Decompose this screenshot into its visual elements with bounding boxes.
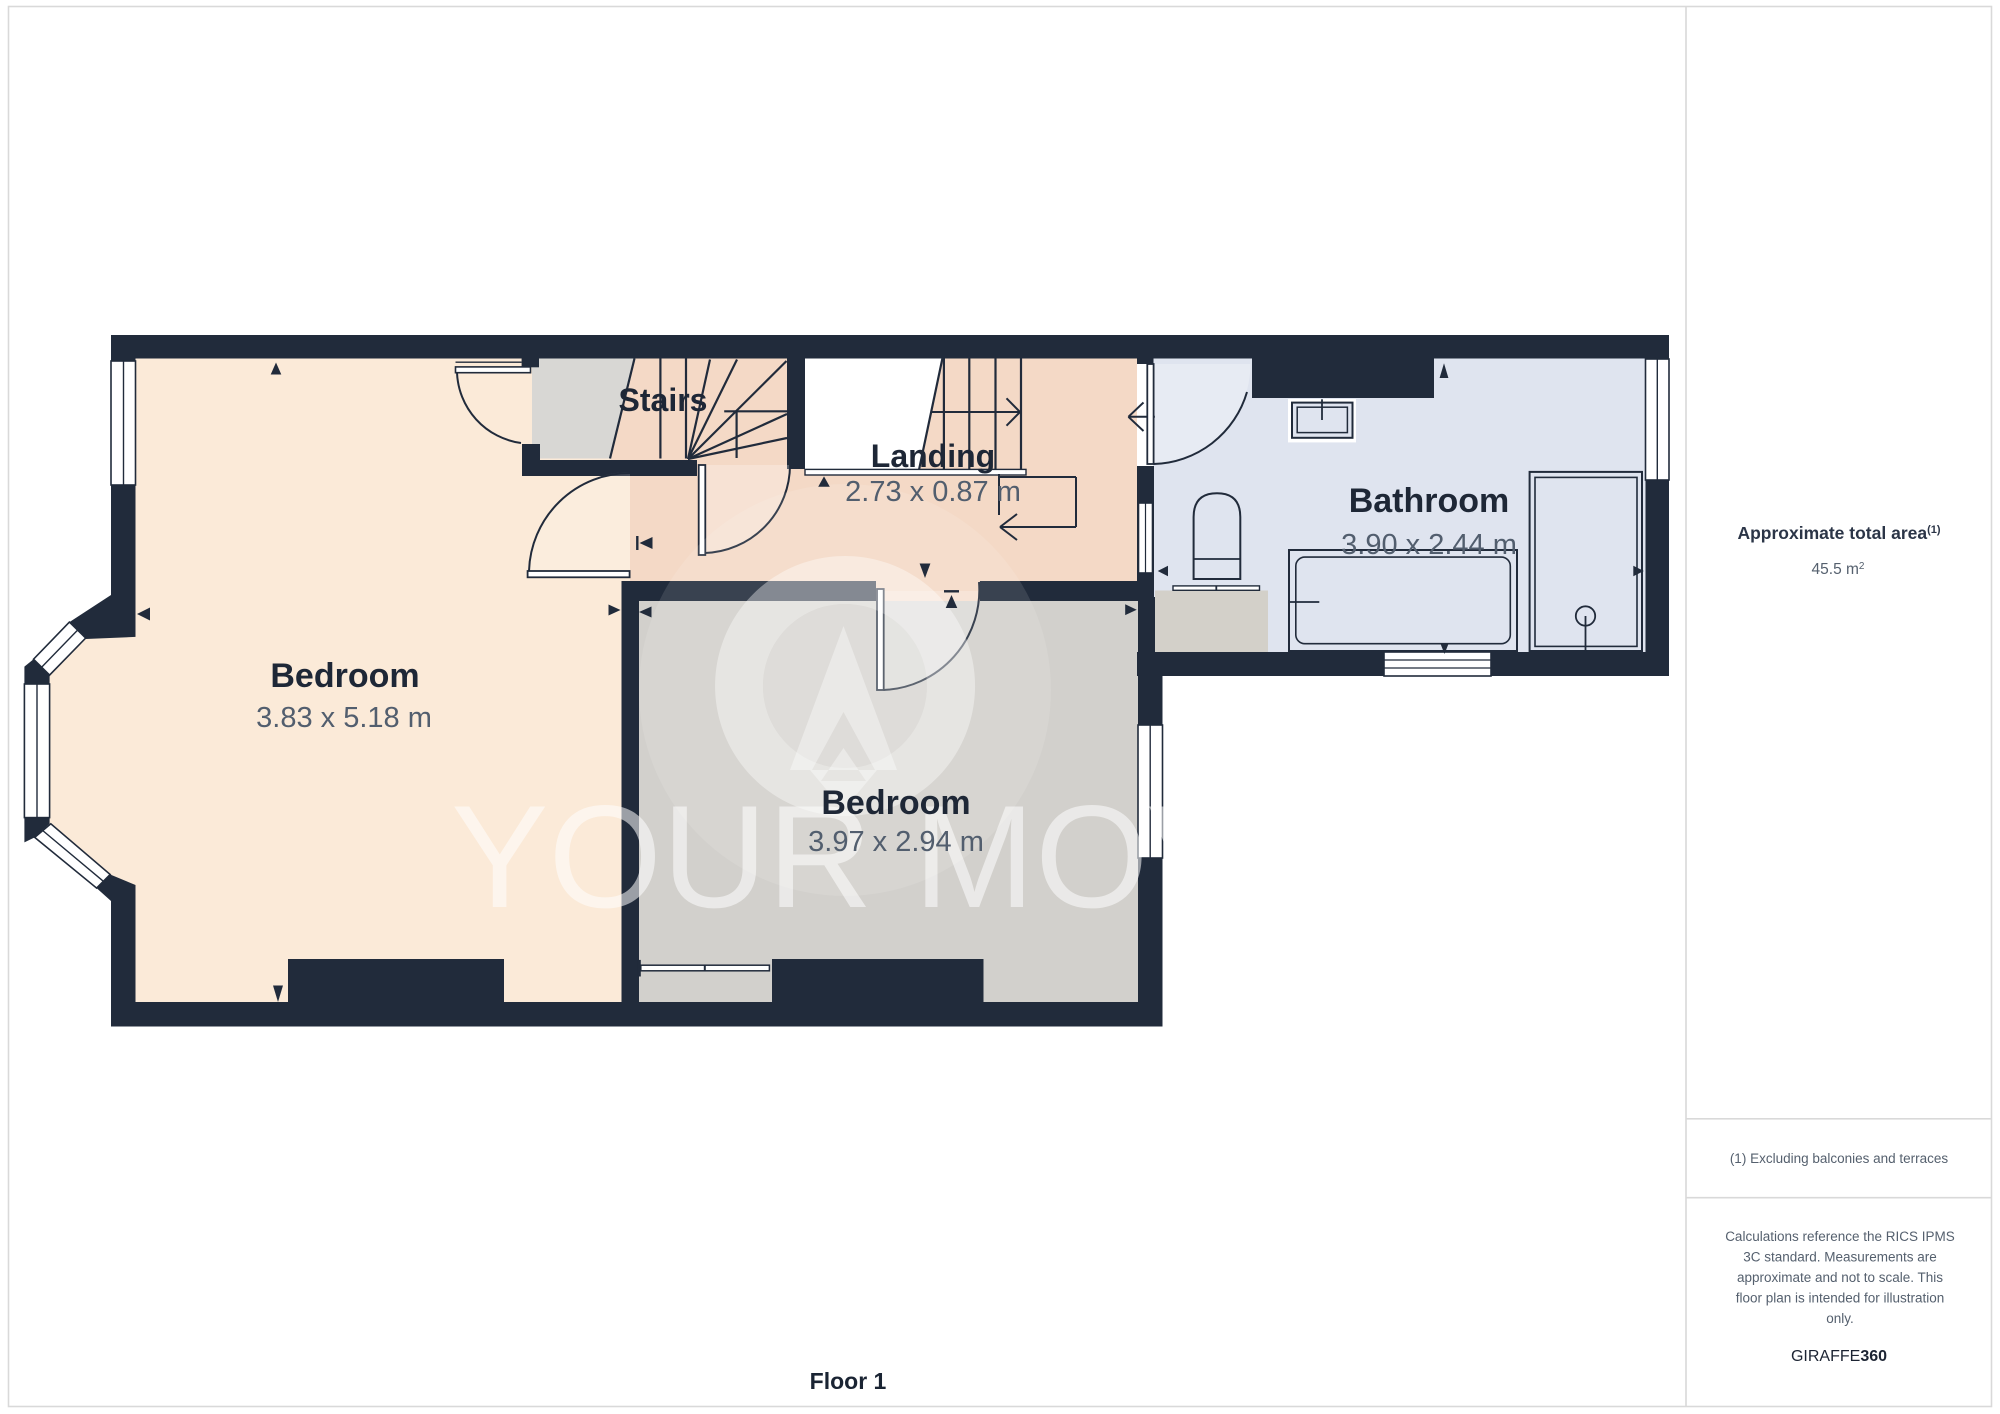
svg-text:Calculations reference the RIC: Calculations reference the RICS IPMS <box>1725 1229 1955 1244</box>
svg-text:floor plan is intended for ill: floor plan is intended for illustration <box>1736 1291 1945 1306</box>
svg-text:Floor 1: Floor 1 <box>810 1368 887 1394</box>
svg-text:Approximate total area(1): Approximate total area(1) <box>1737 523 1940 543</box>
svg-text:45.5 m2: 45.5 m2 <box>1812 561 1865 578</box>
svg-text:Stairs: Stairs <box>619 382 708 418</box>
svg-text:GIRAFFE360: GIRAFFE360 <box>1791 1348 1887 1365</box>
svg-text:2.73 x 0.87 m: 2.73 x 0.87 m <box>845 476 1021 508</box>
svg-text:Bedroom: Bedroom <box>270 657 419 695</box>
svg-text:approximate and not to scale.: approximate and not to scale. This <box>1737 1270 1943 1285</box>
svg-text:3.97 x 2.94 m: 3.97 x 2.94 m <box>808 826 984 858</box>
svg-text:Bedroom: Bedroom <box>821 784 970 822</box>
svg-text:only.: only. <box>1826 1311 1854 1326</box>
svg-text:3.83 x 5.18 m: 3.83 x 5.18 m <box>256 702 432 734</box>
svg-text:(1) Excluding balconies and te: (1) Excluding balconies and terraces <box>1730 1151 1949 1166</box>
svg-text:Landing: Landing <box>871 438 995 474</box>
svg-text:3.90 x 2.44 m: 3.90 x 2.44 m <box>1341 529 1517 561</box>
svg-text:Bathroom: Bathroom <box>1349 482 1510 520</box>
svg-text:3C standard. Measurements are: 3C standard. Measurements are <box>1743 1250 1937 1265</box>
